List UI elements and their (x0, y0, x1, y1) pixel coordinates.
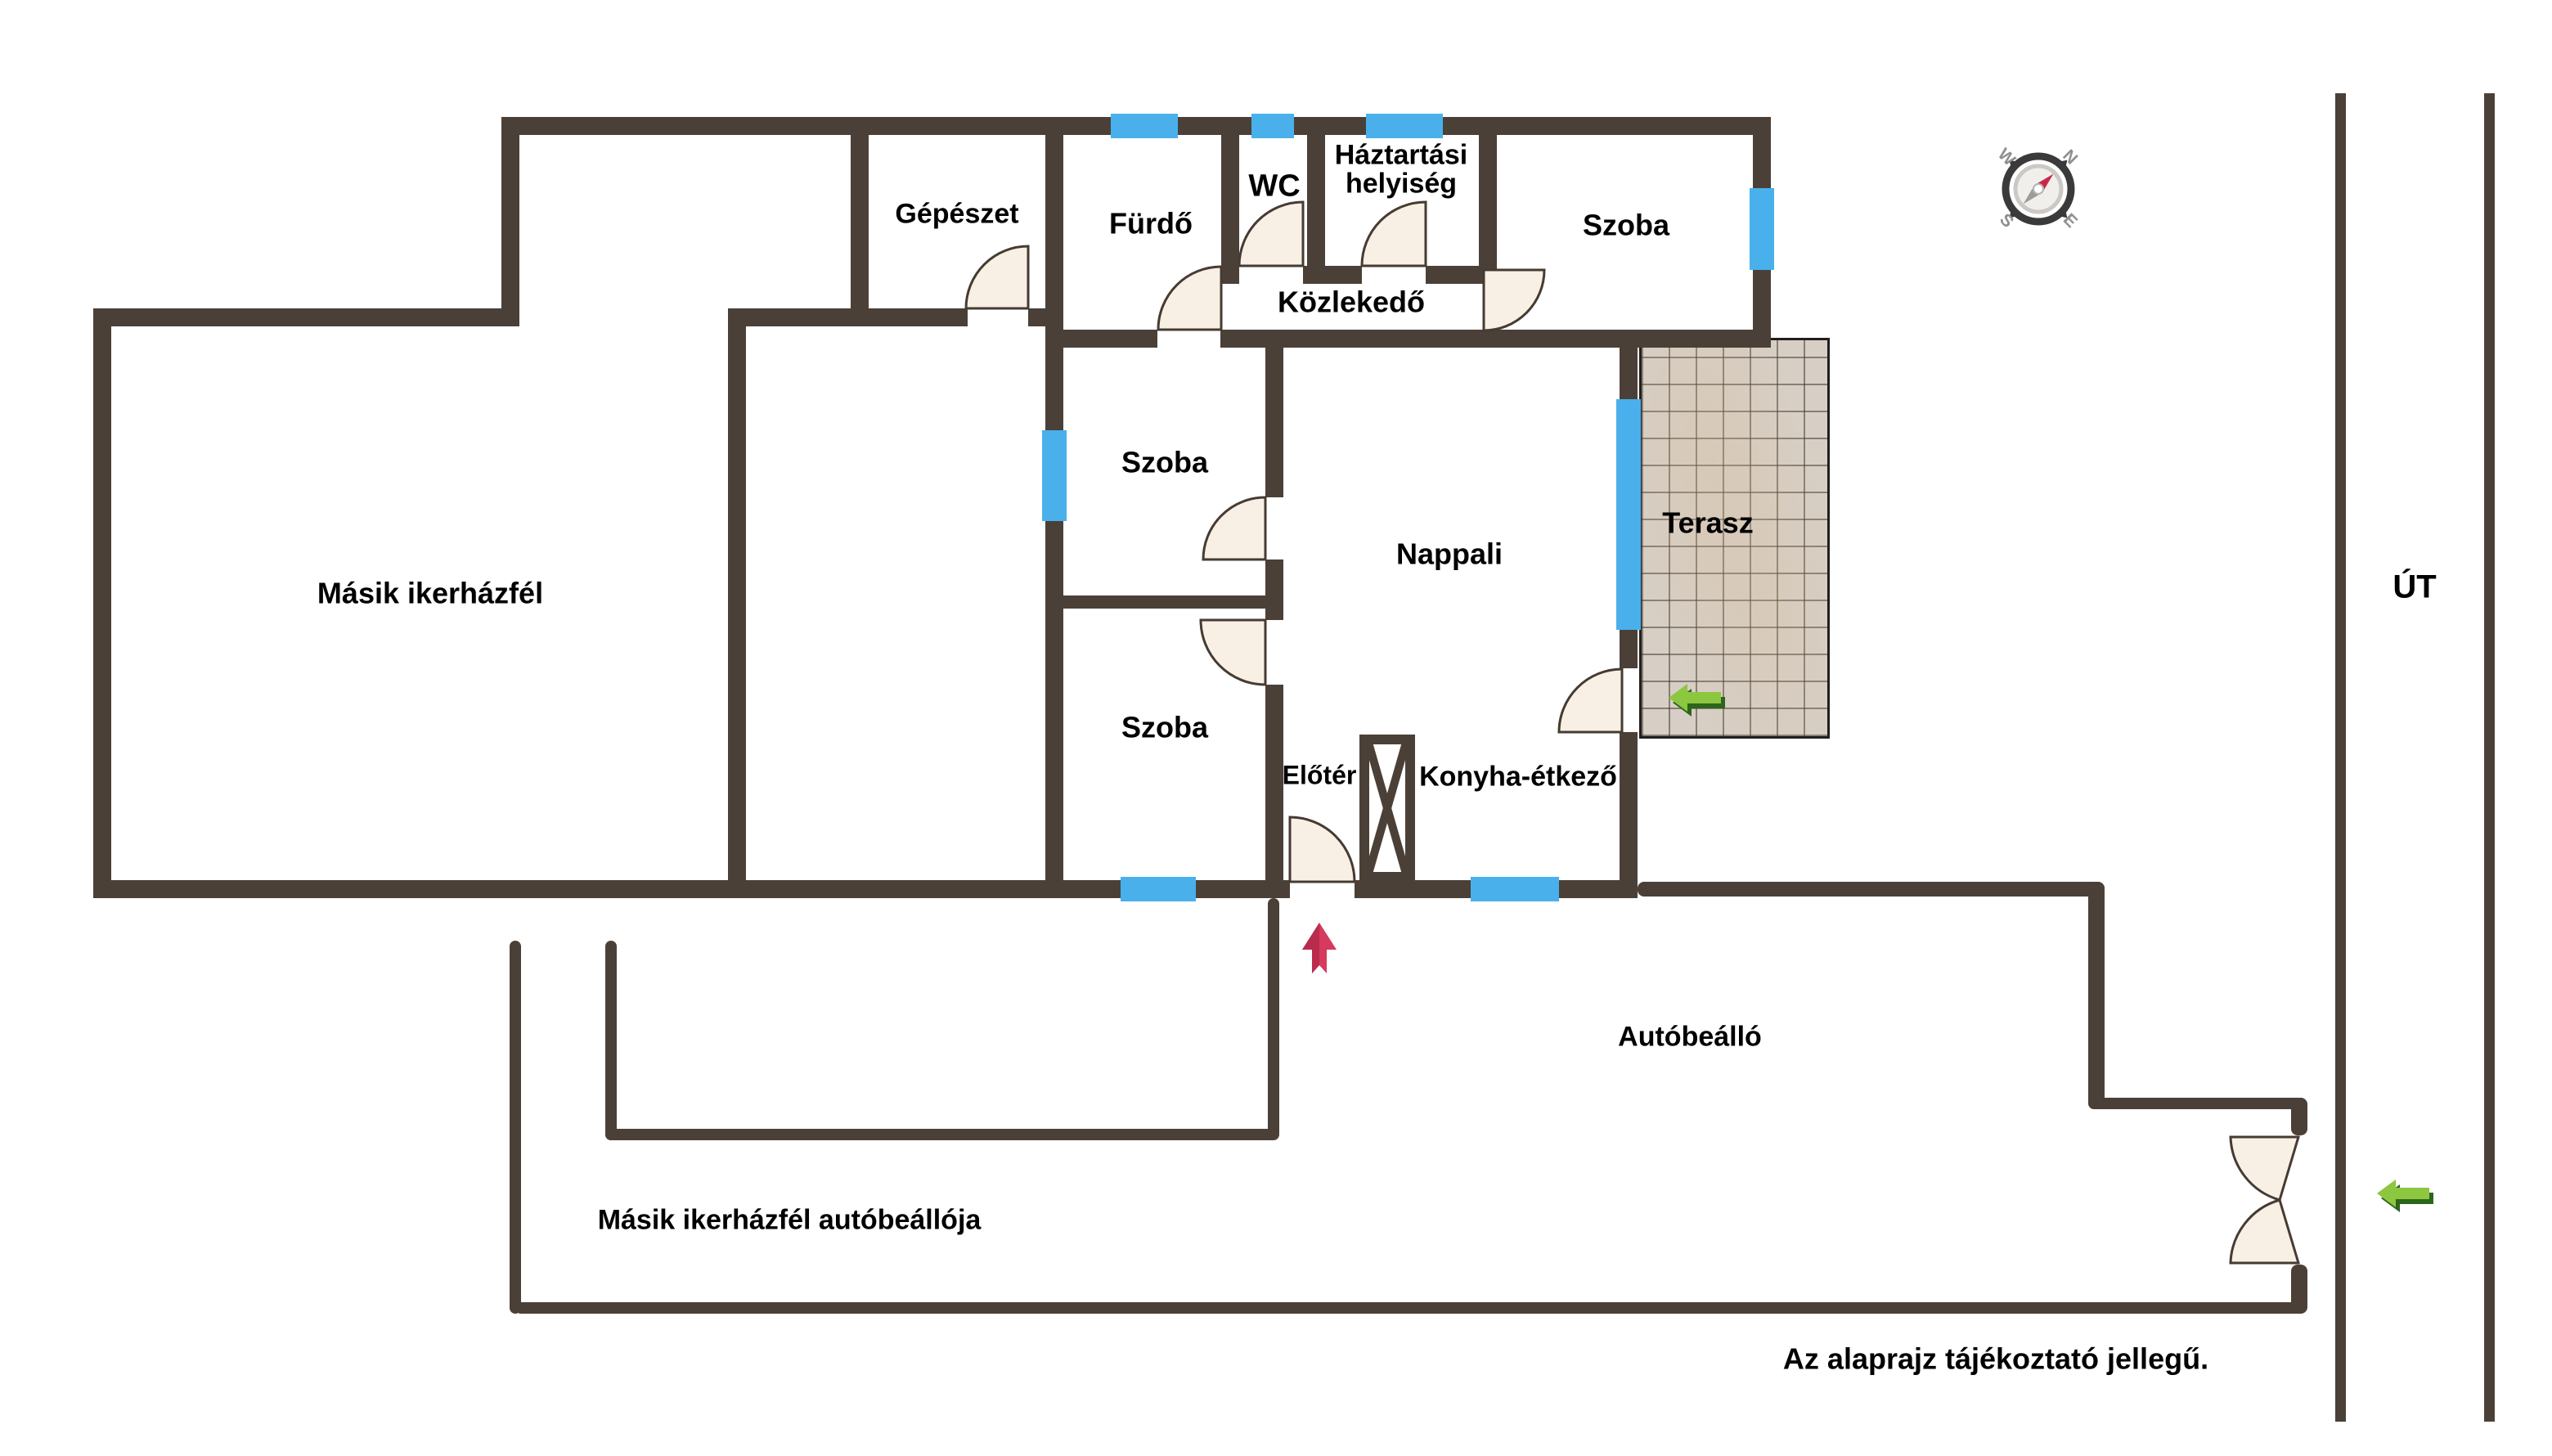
door-furdo (1158, 267, 1221, 330)
compass-icon: N E S W (1962, 113, 2113, 263)
door-szoba-eszaki (1484, 270, 1544, 330)
room-label-szoba-eszaki: Szoba (1583, 211, 1669, 241)
door-gepeszet (966, 246, 1028, 308)
floor-plan: N E S W Másik ikerházfél Gépészet Fürdő … (0, 0, 2552, 1456)
label-disclaimer: Az alaprajz tájékoztató jellegű. (1783, 1345, 2208, 1375)
room-label-gepeszet: Gépészet (895, 200, 1018, 229)
room-label-furdo: Fürdő (1109, 209, 1193, 240)
room-label-haztartasi-helyiseg: Háztartási helyiség (1335, 141, 1468, 197)
room-label-konyha-etkezo: Konyha-étkező (1419, 763, 1617, 792)
direction-arrow-ut-icon (2377, 1180, 2433, 1212)
door-haztartasi (1362, 202, 1426, 266)
door-wc (1239, 202, 1303, 266)
room-label-masik-ikerhazfel: Másik ikerházfél (317, 579, 543, 609)
label-autobeallo: Autóbeálló (1618, 1023, 1762, 1052)
room-label-szoba-also: Szoba (1121, 713, 1208, 744)
door-szoba-kozepso (1203, 497, 1265, 559)
door-szoba-also (1201, 620, 1265, 685)
room-label-wc: WC (1248, 171, 1300, 203)
room-label-szoba-kozepso: Szoba (1121, 448, 1208, 479)
room-label-eloter: Előtér (1283, 762, 1357, 789)
gate-lower-leaf (2231, 1200, 2298, 1263)
door-terasz (1559, 669, 1622, 732)
label-ut: ÚT (2392, 571, 2436, 604)
room-label-haztartasi-line1: Háztartási (1335, 141, 1468, 169)
room-label-haztartasi-line2: helyiség (1335, 169, 1468, 198)
plan-symbols: N E S W (0, 0, 2552, 1456)
label-masik-autobeallo: Másik ikerházfél autóbeállója (598, 1207, 982, 1235)
room-label-kozlekedo: Közlekedő (1278, 288, 1425, 318)
direction-arrow-terasz-icon (1669, 684, 1725, 717)
entrance-arrow-icon (1302, 923, 1337, 973)
gate-upper-leaf (2231, 1137, 2298, 1200)
door-bejarat (1290, 817, 1355, 882)
room-label-terasz: Terasz (1662, 509, 1753, 539)
room-label-nappali: Nappali (1396, 540, 1503, 570)
